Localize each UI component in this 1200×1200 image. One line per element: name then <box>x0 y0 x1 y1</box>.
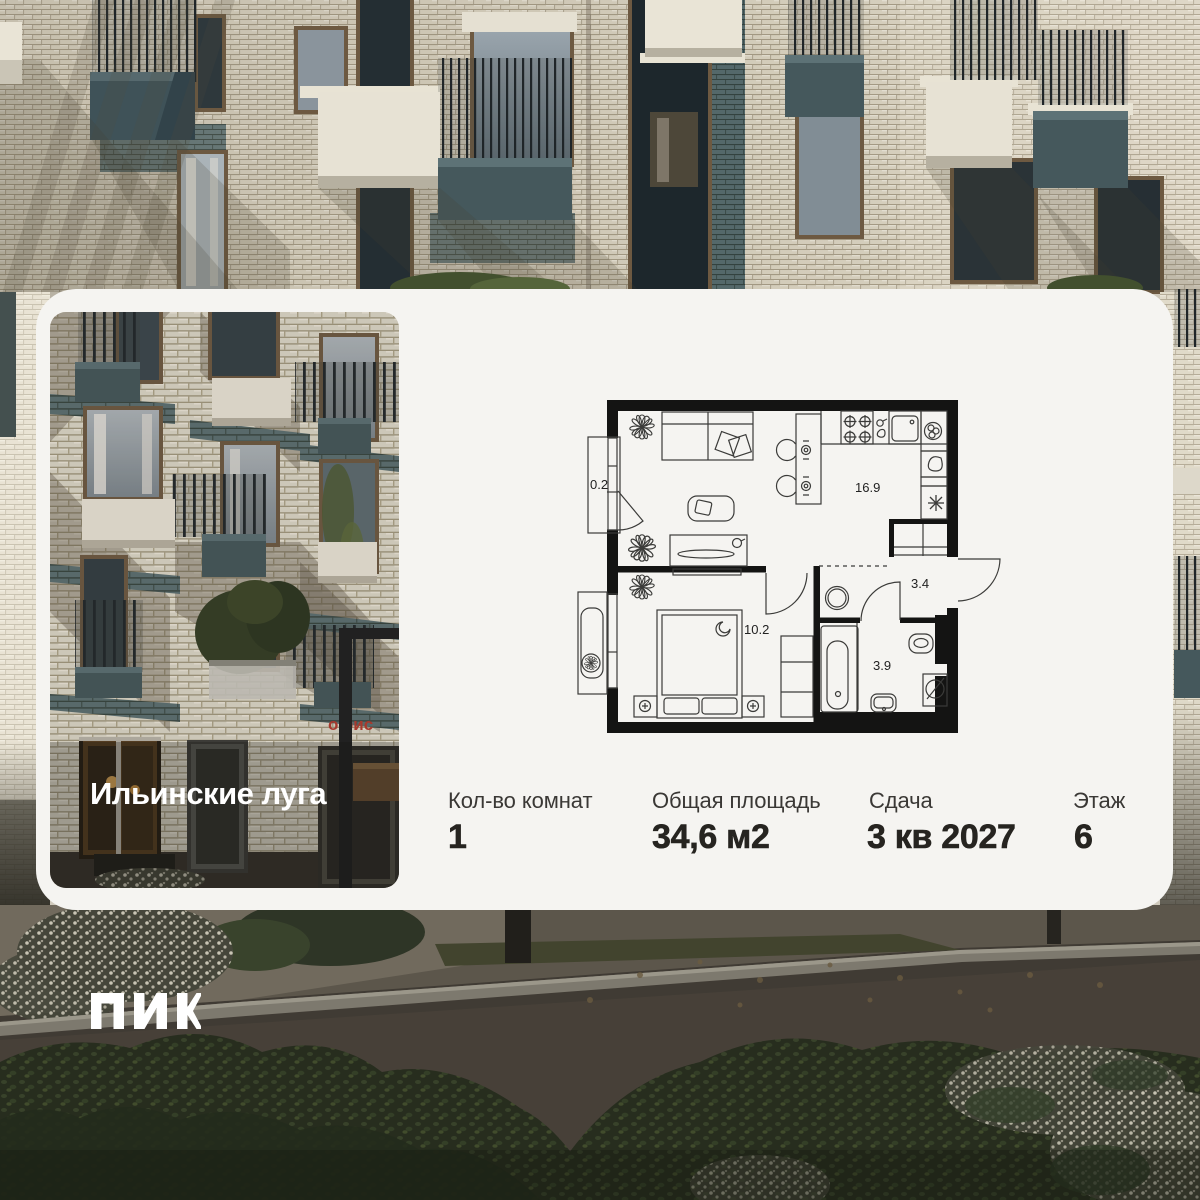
svg-text:0.2: 0.2 <box>590 477 608 492</box>
svg-text:3.4: 3.4 <box>911 576 929 591</box>
svg-text:10.2: 10.2 <box>744 622 769 637</box>
svg-text:16.9: 16.9 <box>855 480 880 495</box>
svg-text:3.9: 3.9 <box>873 658 891 673</box>
